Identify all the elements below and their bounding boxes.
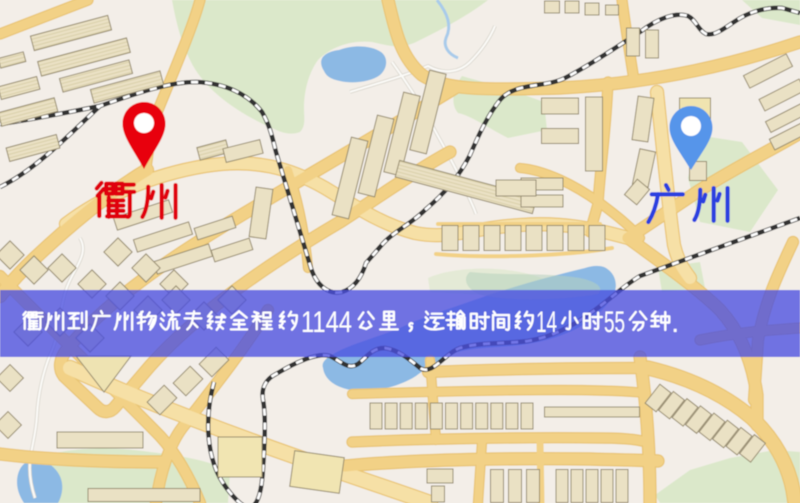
svg-text:55: 55: [604, 306, 625, 339]
svg-text:14: 14: [536, 306, 557, 339]
svg-text:1144: 1144: [301, 306, 352, 339]
svg-text:.: .: [671, 306, 679, 339]
